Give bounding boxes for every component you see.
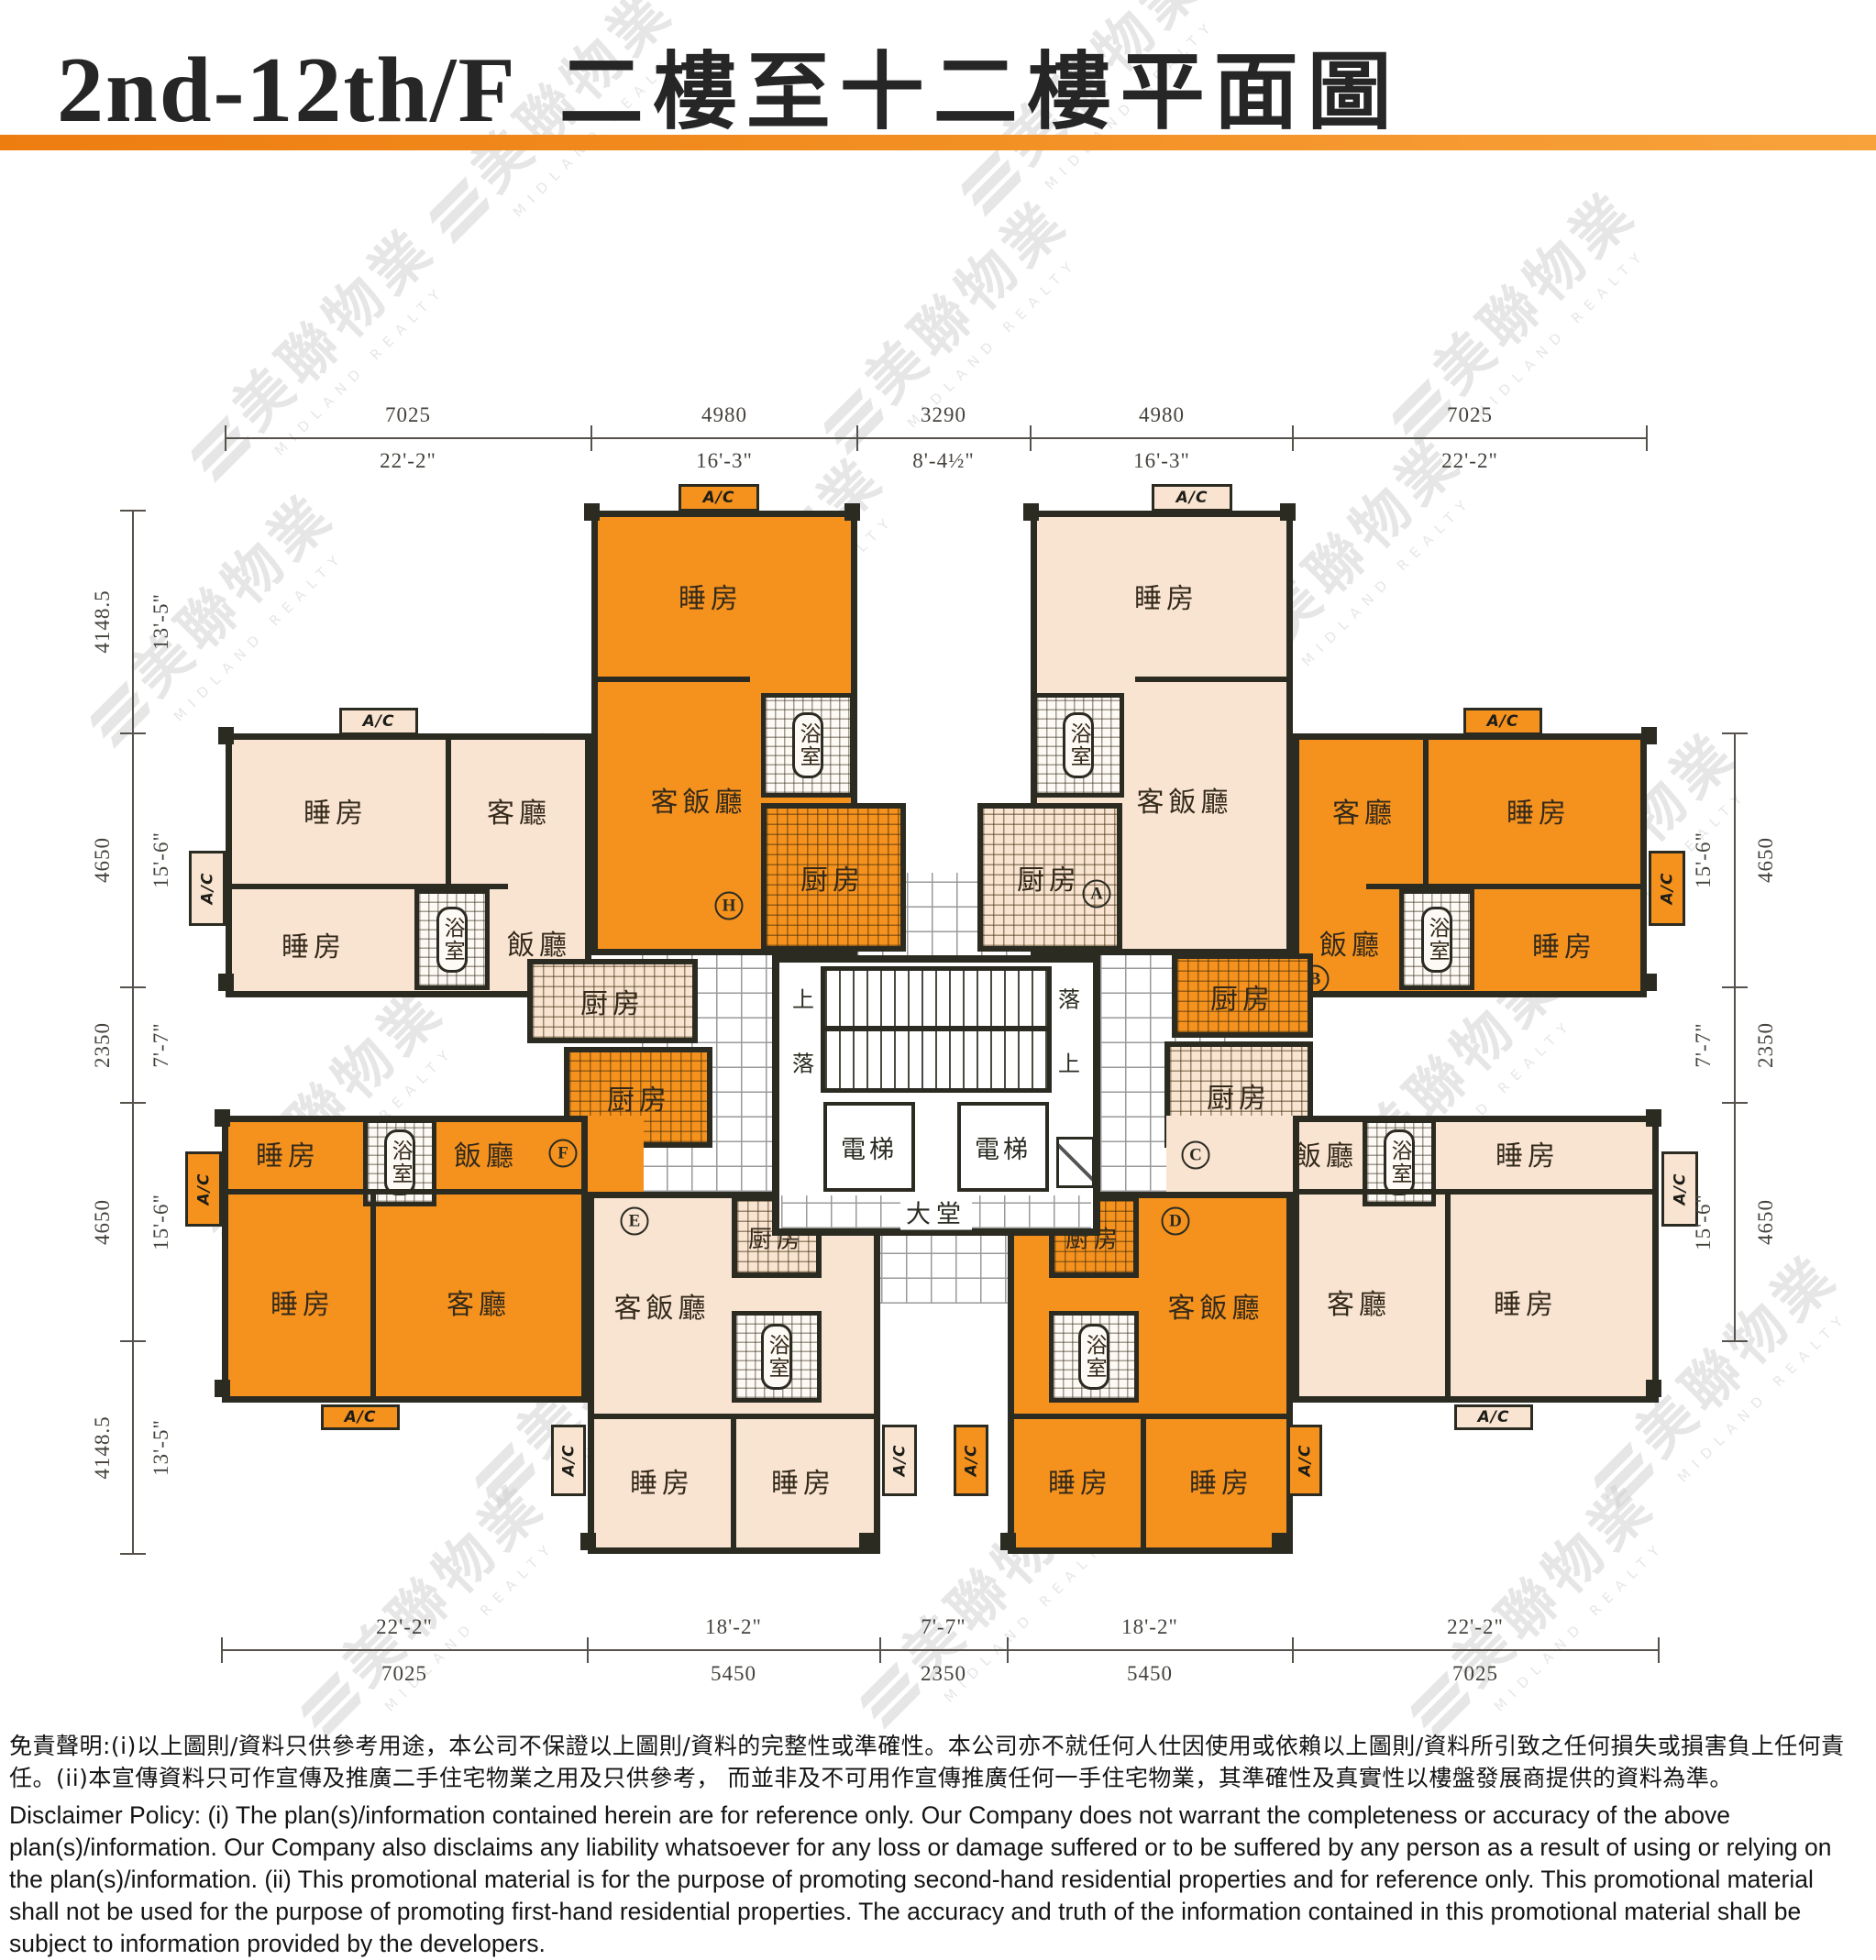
wall bbox=[1135, 677, 1289, 682]
dim-mm: 3290 bbox=[921, 403, 966, 427]
room-label-bedroom: 睡房 bbox=[281, 924, 346, 964]
stair-landing bbox=[821, 1026, 1052, 1031]
wall bbox=[1445, 1195, 1451, 1396]
lift-1: 電梯 bbox=[823, 1102, 915, 1192]
dim-tick bbox=[1722, 986, 1748, 988]
room-label-living-dining: 客飯廳 bbox=[1137, 779, 1233, 820]
midland-logo-icon bbox=[469, 1440, 540, 1511]
dim-tick bbox=[1646, 425, 1648, 451]
room-label-living: 客廳 bbox=[487, 790, 551, 831]
dim-ft: 15'-6" bbox=[1692, 1194, 1716, 1250]
wall bbox=[446, 739, 451, 886]
midland-watermark: 美聯物業MIDLAND REALTY bbox=[799, 177, 1097, 475]
dim-ft: 13'-5" bbox=[149, 593, 173, 650]
unit-letter-E: E bbox=[621, 1207, 649, 1236]
pier bbox=[859, 1533, 875, 1550]
room-label-dining: 飯廳 bbox=[454, 1133, 518, 1173]
dim-tick bbox=[856, 425, 858, 451]
dim-ft: 7'-7" bbox=[149, 1022, 173, 1067]
ac-platform: A/C bbox=[185, 1151, 222, 1227]
room-label-bedroom: 睡房 bbox=[1495, 1133, 1560, 1173]
dim-mm: 7025 bbox=[385, 403, 431, 427]
orange-divider-bar bbox=[0, 135, 1876, 150]
bathroom-A: 浴室 bbox=[1032, 693, 1124, 798]
room-label-living: 客廳 bbox=[1327, 1282, 1391, 1322]
dim-ft: 7'-7" bbox=[921, 1615, 966, 1639]
dim-ft: 16'-3" bbox=[696, 449, 753, 473]
dim-mm: 2350 bbox=[921, 1662, 966, 1686]
title-english: 2nd-12th/F bbox=[57, 37, 517, 144]
dim-ft: 7'-7" bbox=[1692, 1022, 1716, 1067]
pier bbox=[580, 1533, 596, 1550]
pier bbox=[1646, 1109, 1661, 1127]
bathroom-G: 浴室 bbox=[414, 889, 490, 990]
dim-tick bbox=[1030, 425, 1032, 451]
room-label-dining: 飯廳 bbox=[1319, 922, 1384, 963]
lift-2: 電梯 bbox=[957, 1102, 1049, 1192]
dim-tick bbox=[120, 1553, 146, 1555]
unit-letter-F: F bbox=[549, 1140, 578, 1168]
pier bbox=[215, 1109, 230, 1127]
dim-mm: 2350 bbox=[91, 1022, 115, 1068]
room-label-bedroom: 睡房 bbox=[771, 1460, 835, 1501]
dim-ft: 13'-5" bbox=[149, 1419, 173, 1476]
room-label-kitchen: 厨房 bbox=[580, 981, 645, 1021]
pier bbox=[1641, 974, 1657, 991]
dim-ft: 15'-6" bbox=[1692, 831, 1716, 888]
room-label-bedroom: 睡房 bbox=[1189, 1460, 1253, 1501]
room-label-kitchen: 厨房 bbox=[1210, 976, 1275, 1017]
room-label-bedroom: 睡房 bbox=[1134, 576, 1198, 616]
room-label-kitchen: 厨房 bbox=[1017, 857, 1081, 897]
dim-ft: 8'-4½" bbox=[912, 449, 974, 473]
midland-watermark: 美聯物業MIDLAND REALTY bbox=[1385, 1460, 1683, 1758]
dimension-line-right bbox=[1734, 733, 1736, 1341]
pier bbox=[1646, 1380, 1661, 1397]
pier bbox=[844, 503, 860, 521]
ac-platform: A/C bbox=[1287, 1425, 1322, 1496]
midland-watermark: 美聯物業MIDLAND REALTY bbox=[276, 1460, 574, 1758]
dim-ft: 22'-2" bbox=[380, 449, 436, 473]
disclaimer-chinese: 免責聲明:(i)以上圖則/資料只供參考用途，本公司不保證以上圖則/資料的完整性或… bbox=[9, 1731, 1869, 1794]
pier bbox=[1023, 503, 1039, 521]
unit-letter-D: D bbox=[1162, 1207, 1190, 1236]
stair-down-label: 落 bbox=[1058, 982, 1080, 1014]
wall bbox=[1298, 1189, 1653, 1195]
dim-tick bbox=[120, 1102, 146, 1104]
dim-tick bbox=[1007, 1637, 1009, 1663]
dim-tick bbox=[221, 1637, 223, 1663]
dim-tick bbox=[120, 732, 146, 734]
dimension-line-bottom bbox=[222, 1649, 1659, 1651]
dim-ft: 16'-3" bbox=[1133, 449, 1190, 473]
dim-tick bbox=[587, 1637, 589, 1663]
pier bbox=[584, 503, 600, 521]
ac-platform: A/C bbox=[954, 1425, 988, 1496]
dim-tick bbox=[590, 425, 592, 451]
pier bbox=[218, 727, 234, 744]
dim-mm: 2350 bbox=[1754, 1022, 1778, 1068]
dim-ft: 15'-6" bbox=[149, 1194, 173, 1250]
stair-up-label: 上 bbox=[1058, 1046, 1080, 1078]
pier bbox=[1000, 1533, 1016, 1550]
unit-letter-C: C bbox=[1182, 1141, 1210, 1170]
pier bbox=[215, 1380, 230, 1397]
midland-logo-icon bbox=[855, 1660, 925, 1731]
dim-ft: 18'-2" bbox=[705, 1615, 762, 1639]
ac-platform: A/C bbox=[1463, 708, 1542, 735]
dim-tick bbox=[120, 1340, 146, 1342]
dim-tick bbox=[225, 425, 226, 451]
room-label-bedroom: 睡房 bbox=[270, 1282, 335, 1322]
midland-logo-icon bbox=[955, 148, 1026, 218]
midland-logo-icon bbox=[185, 413, 256, 484]
midland-logo-icon bbox=[818, 386, 888, 457]
ac-platform: A/C bbox=[321, 1404, 400, 1430]
dim-tick bbox=[120, 986, 146, 988]
ac-platform: A/C bbox=[1152, 484, 1232, 512]
wall bbox=[731, 1419, 736, 1547]
room-label-kitchen: 厨房 bbox=[607, 1077, 671, 1118]
room-label-bedroom: 睡房 bbox=[1532, 924, 1596, 964]
wall bbox=[227, 1189, 582, 1195]
dim-mm: 4148.5 bbox=[91, 1415, 115, 1479]
wall bbox=[1141, 1419, 1146, 1547]
dim-mm: 5450 bbox=[1127, 1662, 1173, 1686]
room-label-bedroom: 睡房 bbox=[303, 790, 368, 831]
room-label-bedroom: 睡房 bbox=[1506, 790, 1571, 831]
pier bbox=[1641, 727, 1657, 744]
pier bbox=[1280, 503, 1296, 521]
midland-logo-icon bbox=[84, 679, 155, 750]
pier bbox=[1272, 1533, 1287, 1550]
stair-down-label: 落 bbox=[792, 1046, 814, 1078]
page-title: 2nd-12th/F 二樓至十二樓平面圖 bbox=[57, 24, 1401, 146]
dim-mm: 4650 bbox=[91, 1199, 115, 1245]
dim-ft: 22'-2" bbox=[1441, 449, 1498, 473]
ac-platform: A/C bbox=[339, 708, 418, 735]
room-label-living: 客廳 bbox=[447, 1282, 511, 1322]
midland-logo-icon bbox=[1588, 1440, 1659, 1511]
room-label-bedroom: 睡房 bbox=[256, 1133, 320, 1173]
ac-platform: A/C bbox=[551, 1425, 586, 1496]
room-label-living-dining: 客飯廳 bbox=[614, 1285, 711, 1326]
dimension-line-left bbox=[132, 511, 134, 1554]
dim-tick bbox=[120, 510, 146, 512]
dim-mm: 7025 bbox=[1447, 403, 1493, 427]
disclaimer: 免責聲明:(i)以上圖則/資料只供參考用途，本公司不保證以上圖則/資料的完整性或… bbox=[9, 1731, 1869, 1960]
bathroom-H: 浴室 bbox=[761, 693, 855, 798]
bathroom-D: 浴室 bbox=[1049, 1311, 1139, 1403]
dim-tick bbox=[1658, 1637, 1660, 1663]
dim-tick bbox=[1722, 1102, 1748, 1104]
room-label-bedroom: 睡房 bbox=[1048, 1460, 1112, 1501]
dim-tick bbox=[1722, 1340, 1748, 1342]
ac-platform: A/C bbox=[189, 851, 226, 926]
floor-plan-page: { "header": { "title_en": "2nd-12th/F", … bbox=[0, 0, 1876, 1927]
dim-tick bbox=[1292, 1637, 1294, 1663]
unit-F-extension bbox=[581, 1116, 644, 1196]
ac-platform: A/C bbox=[1649, 851, 1685, 926]
dim-ft: 15'-6" bbox=[149, 831, 173, 888]
room-label-dining: 飯廳 bbox=[1294, 1133, 1358, 1173]
unit-letter-H: H bbox=[715, 892, 744, 920]
wall bbox=[1423, 739, 1429, 886]
dim-mm: 4980 bbox=[701, 403, 747, 427]
ac-platform: A/C bbox=[882, 1425, 917, 1496]
dim-mm: 4650 bbox=[91, 837, 115, 883]
disclaimer-english: Disclaimer Policy: (i) The plan(s)/infor… bbox=[9, 1800, 1869, 1960]
midland-logo-icon bbox=[424, 175, 494, 246]
room-label-kitchen: 厨房 bbox=[800, 857, 865, 897]
stair-up-label: 上 bbox=[792, 982, 814, 1014]
dim-ft: 22'-2" bbox=[1447, 1615, 1504, 1639]
dim-mm: 4148.5 bbox=[91, 589, 115, 653]
dim-ft: 22'-2" bbox=[376, 1615, 433, 1639]
dim-mm: 4650 bbox=[1754, 837, 1778, 883]
room-label-kitchen: 厨房 bbox=[1207, 1075, 1271, 1116]
dim-mm: 4650 bbox=[1754, 1199, 1778, 1245]
ac-platform: A/C bbox=[1454, 1404, 1533, 1430]
dim-mm: 5450 bbox=[711, 1662, 756, 1686]
room-label-living: 客廳 bbox=[1332, 790, 1396, 831]
pier bbox=[218, 974, 234, 991]
dim-ft: 18'-2" bbox=[1121, 1615, 1178, 1639]
dim-tick bbox=[1722, 732, 1748, 734]
wall bbox=[1013, 1414, 1287, 1419]
bathroom-B: 浴室 bbox=[1399, 889, 1474, 990]
dim-mm: 7025 bbox=[1452, 1662, 1498, 1686]
core-closet bbox=[1056, 1137, 1095, 1188]
unit-letter-A: A bbox=[1083, 880, 1111, 908]
room-label-living-dining: 客飯廳 bbox=[651, 779, 747, 820]
ac-platform: A/C bbox=[679, 484, 759, 512]
bathroom-E: 浴室 bbox=[732, 1311, 822, 1403]
lobby-label: 大堂 bbox=[900, 1195, 972, 1230]
dim-mm: 4980 bbox=[1139, 403, 1185, 427]
room-label-bath: 浴室 bbox=[792, 712, 823, 778]
wall bbox=[596, 677, 750, 682]
midland-logo-icon bbox=[295, 1669, 366, 1740]
room-label-bedroom: 睡房 bbox=[1494, 1282, 1558, 1322]
room-label-living-dining: 客飯廳 bbox=[1168, 1285, 1264, 1326]
dim-mm: 7025 bbox=[381, 1662, 427, 1686]
dim-tick bbox=[879, 1637, 881, 1663]
room-label-dining: 飯廳 bbox=[507, 922, 571, 963]
dimension-line-top bbox=[226, 437, 1647, 439]
dim-tick bbox=[1292, 425, 1294, 451]
title-chinese: 二樓至十二樓平面圖 bbox=[559, 24, 1401, 146]
room-label-bedroom: 睡房 bbox=[679, 576, 743, 616]
wall bbox=[370, 1195, 376, 1396]
room-label-bedroom: 睡房 bbox=[630, 1460, 694, 1501]
midland-watermark: 美聯物業MIDLAND REALTY bbox=[1367, 168, 1665, 466]
